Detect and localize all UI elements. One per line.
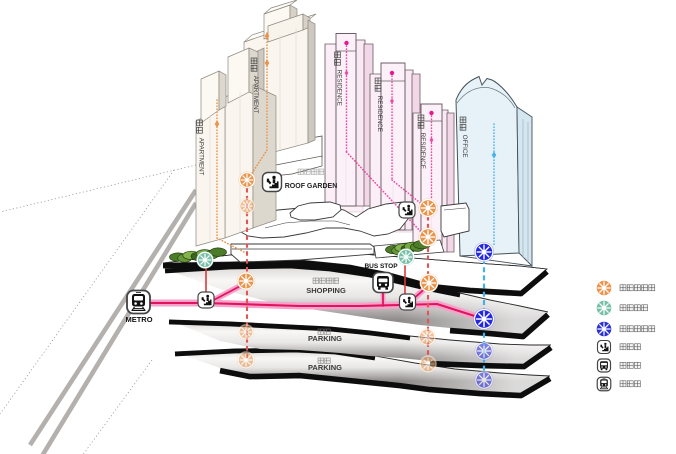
svg-text:RESIDENCE: RESIDENCE bbox=[376, 96, 383, 132]
svg-text:OFFICE: OFFICE bbox=[461, 135, 468, 158]
svg-text:PARKING: PARKING bbox=[308, 363, 342, 372]
svg-text:METRO: METRO bbox=[125, 315, 152, 324]
svg-text:RESIDENCE: RESIDENCE bbox=[336, 70, 343, 106]
svg-text:APARTMENT: APARTMENT bbox=[252, 76, 259, 114]
svg-text:PARKING: PARKING bbox=[308, 334, 342, 343]
svg-text:ROOF GARDEN: ROOF GARDEN bbox=[285, 183, 338, 190]
svg-text:SHOPPING: SHOPPING bbox=[306, 286, 346, 295]
svg-text:RESIDENCE: RESIDENCE bbox=[419, 133, 426, 169]
svg-text:BUS STOP: BUS STOP bbox=[364, 263, 398, 270]
svg-text:APARTMENT: APARTMENT bbox=[198, 138, 205, 176]
